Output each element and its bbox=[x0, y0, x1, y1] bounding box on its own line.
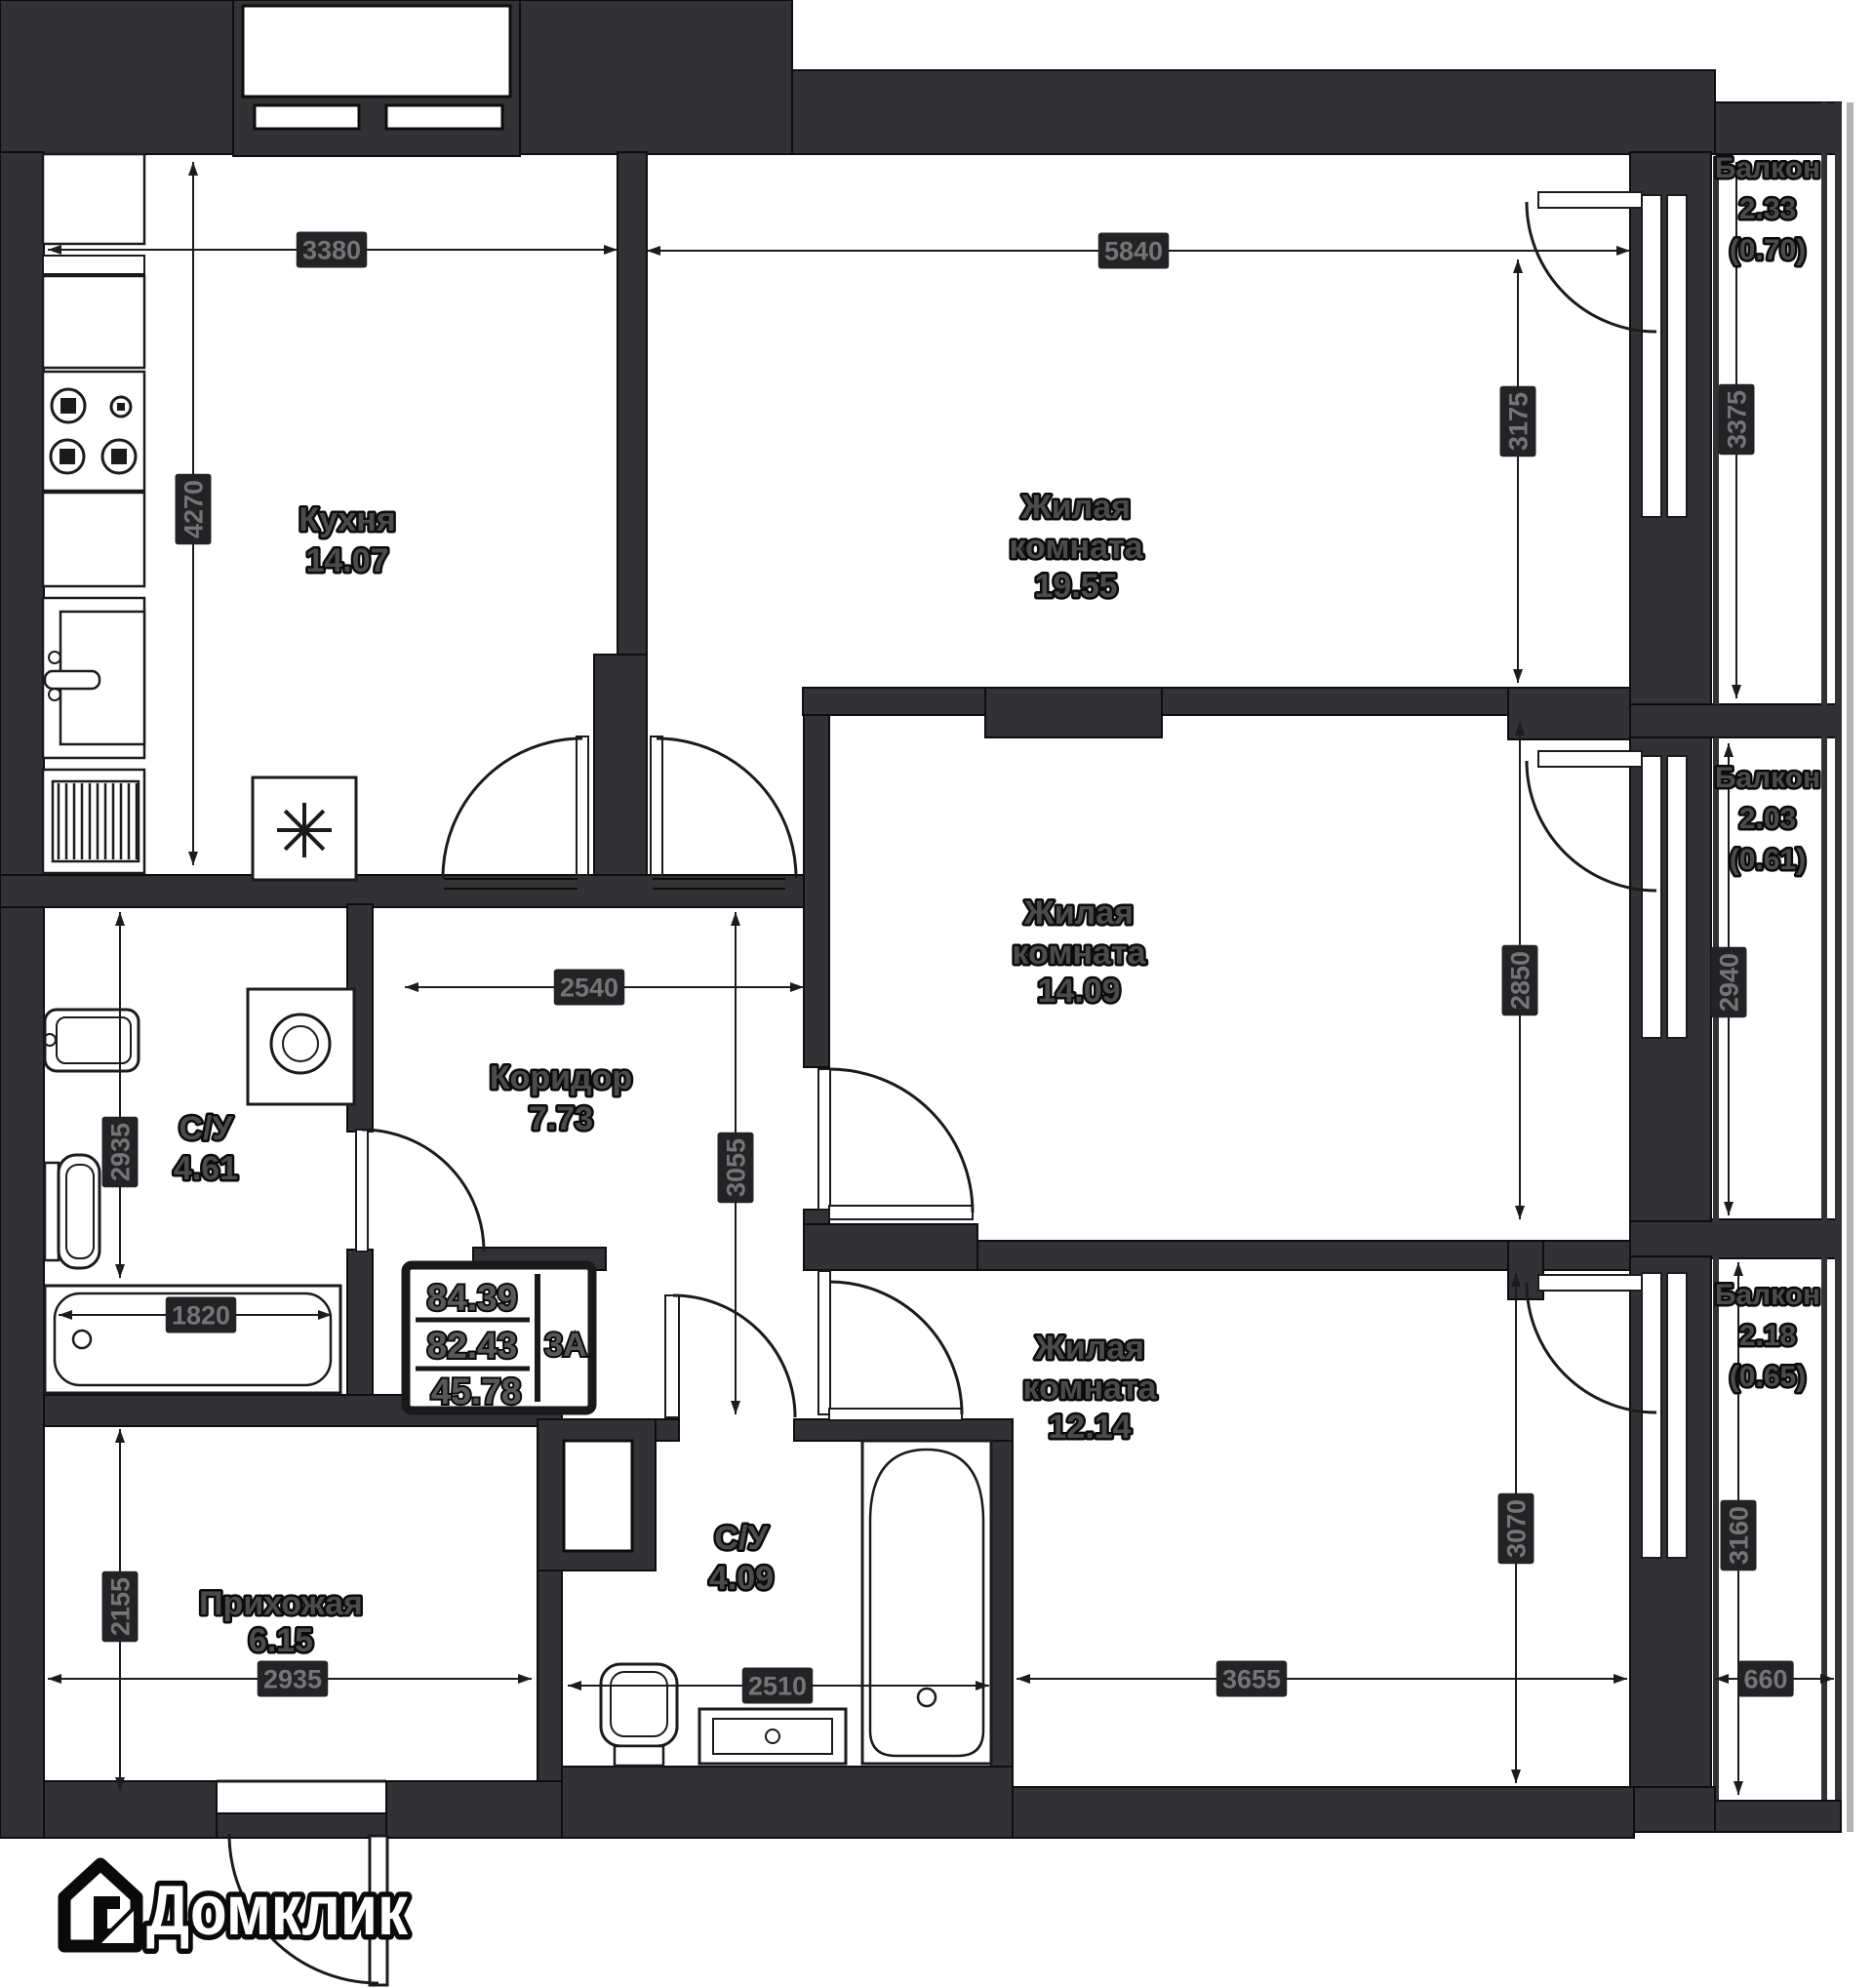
svg-text:660: 660 bbox=[1743, 1665, 1787, 1694]
svg-text:2.33: 2.33 bbox=[1739, 193, 1796, 225]
svg-text:2155: 2155 bbox=[106, 1577, 136, 1636]
svg-text:(0.70): (0.70) bbox=[1730, 234, 1806, 266]
svg-text:С/У: С/У bbox=[179, 1110, 233, 1147]
svg-text:2.18: 2.18 bbox=[1739, 1320, 1796, 1352]
svg-text:12.14: 12.14 bbox=[1048, 1409, 1131, 1446]
svg-text:Балкон: Балкон bbox=[1715, 762, 1820, 794]
svg-text:2935: 2935 bbox=[106, 1123, 136, 1181]
svg-text:3175: 3175 bbox=[1504, 392, 1534, 451]
svg-text:4270: 4270 bbox=[179, 480, 209, 538]
svg-text:4.09: 4.09 bbox=[709, 1560, 774, 1597]
svg-text:Кухня: Кухня bbox=[299, 501, 395, 538]
svg-text:84.39: 84.39 bbox=[427, 1278, 518, 1318]
svg-text:7.73: 7.73 bbox=[529, 1100, 593, 1137]
svg-text:2.03: 2.03 bbox=[1739, 803, 1796, 835]
svg-text:С/У: С/У bbox=[714, 1520, 769, 1557]
svg-text:комната: комната bbox=[1009, 529, 1143, 566]
svg-text:4.61: 4.61 bbox=[174, 1150, 238, 1187]
svg-text:Жилая: Жилая bbox=[1020, 489, 1131, 526]
svg-text:3380: 3380 bbox=[302, 236, 361, 265]
svg-text:3А: 3А bbox=[544, 1327, 586, 1364]
svg-text:3375: 3375 bbox=[1723, 390, 1752, 449]
svg-text:14.07: 14.07 bbox=[305, 542, 388, 579]
svg-text:19.55: 19.55 bbox=[1034, 568, 1117, 605]
svg-text:14.09: 14.09 bbox=[1037, 973, 1120, 1010]
svg-text:(0.61): (0.61) bbox=[1730, 844, 1806, 876]
svg-text:3070: 3070 bbox=[1502, 1499, 1532, 1558]
svg-text:Балкон: Балкон bbox=[1715, 152, 1820, 184]
svg-text:2940: 2940 bbox=[1715, 953, 1744, 1012]
svg-text:3055: 3055 bbox=[722, 1138, 751, 1197]
svg-text:3655: 3655 bbox=[1222, 1665, 1281, 1694]
svg-text:2540: 2540 bbox=[560, 974, 618, 1003]
svg-text:5840: 5840 bbox=[1104, 237, 1163, 266]
svg-text:1820: 1820 bbox=[172, 1301, 230, 1331]
svg-text:2510: 2510 bbox=[748, 1672, 807, 1701]
svg-text:45.78: 45.78 bbox=[431, 1372, 522, 1411]
svg-text:2850: 2850 bbox=[1506, 951, 1535, 1010]
svg-text:2935: 2935 bbox=[263, 1665, 322, 1694]
svg-text:Балкон: Балкон bbox=[1715, 1279, 1820, 1311]
svg-text:Жилая: Жилая bbox=[1034, 1330, 1144, 1367]
svg-text:Жилая: Жилая bbox=[1023, 895, 1134, 932]
svg-text:комната: комната bbox=[1022, 1370, 1157, 1407]
svg-text:82.43: 82.43 bbox=[427, 1326, 518, 1366]
svg-text:Прихожая: Прихожая bbox=[199, 1585, 363, 1622]
svg-text:6.15: 6.15 bbox=[249, 1622, 313, 1659]
svg-text:Домклик: Домклик bbox=[146, 1872, 409, 1950]
svg-text:3160: 3160 bbox=[1725, 1506, 1754, 1565]
svg-text:(0.65): (0.65) bbox=[1730, 1361, 1806, 1393]
svg-text:Коридор: Коридор bbox=[490, 1059, 632, 1096]
svg-text:комната: комната bbox=[1012, 934, 1146, 972]
